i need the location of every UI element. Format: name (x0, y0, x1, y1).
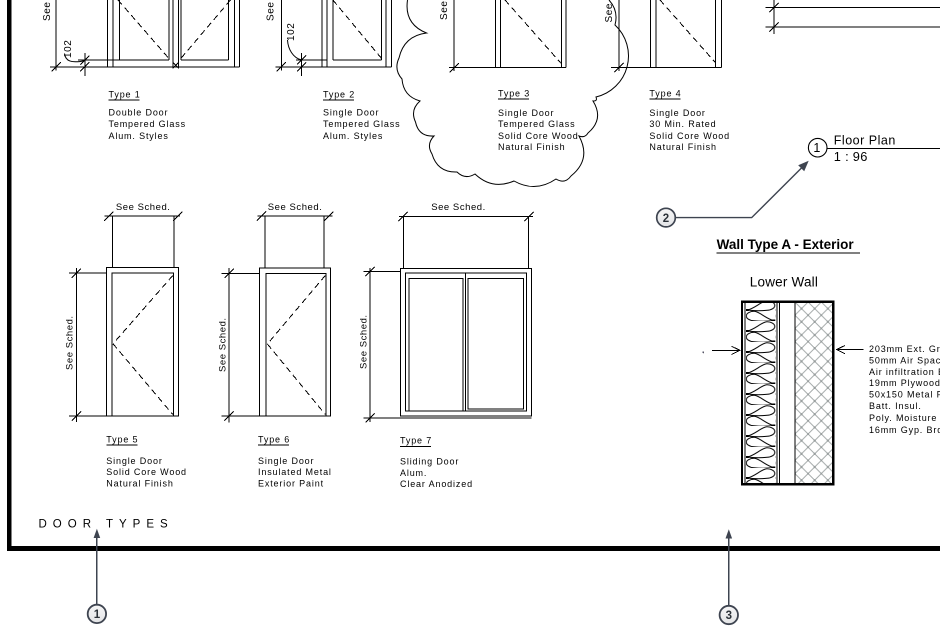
svg-text:See Sched.: See Sched. (358, 314, 369, 369)
svg-text:Tempered Glass: Tempered Glass (498, 119, 575, 129)
svg-text:3: 3 (726, 610, 732, 622)
svg-text:Floor Plan: Floor Plan (834, 134, 896, 148)
svg-text:Single Door: Single Door (323, 108, 379, 118)
svg-text:Type 5: Type 5 (106, 434, 138, 444)
svg-text:1 : 96: 1 : 96 (834, 149, 868, 164)
svg-text:Type 2: Type 2 (323, 90, 355, 100)
svg-text:Exterior Paint: Exterior Paint (258, 479, 324, 489)
svg-text:Alum. Styles: Alum. Styles (323, 131, 383, 141)
svg-text:102: 102 (286, 23, 297, 41)
svg-text:Air infiltration Barrier: Air infiltration Barrier (869, 367, 940, 377)
svg-text:Tempered Glass: Tempered Glass (323, 119, 400, 129)
svg-text:Single Door: Single Door (649, 108, 705, 118)
svg-text:Solid Core Wood: Solid Core Wood (106, 467, 187, 477)
svg-text:See Sched.: See Sched. (431, 202, 486, 213)
svg-text:Type 7: Type 7 (400, 436, 432, 446)
svg-text:1: 1 (94, 609, 101, 621)
svg-text:DOOR TYPES: DOOR TYPES (39, 519, 174, 531)
svg-text:See Sched.: See Sched. (65, 315, 76, 370)
svg-text:Poly. Moisture Barrier: Poly. Moisture Barrier (869, 413, 940, 423)
svg-text:See: See (439, 1, 450, 20)
svg-text:Solid Core Wood: Solid Core Wood (498, 131, 579, 141)
svg-text:50x150 Metal Frame: 50x150 Metal Frame (869, 390, 940, 400)
svg-text:See Sched.: See Sched. (217, 317, 228, 372)
svg-text:Tempered Glass: Tempered Glass (109, 119, 186, 129)
svg-text:Batt. Insul.: Batt. Insul. (869, 401, 922, 411)
svg-text:Lower Wall: Lower Wall (750, 275, 818, 290)
svg-text:Single Door: Single Door (258, 456, 314, 466)
svg-text:See: See (42, 2, 53, 21)
svg-text:2: 2 (663, 213, 669, 225)
svg-text:Solid Core Wood: Solid Core Wood (649, 131, 730, 141)
svg-text:Single Door: Single Door (106, 456, 162, 466)
svg-text:See: See (266, 2, 277, 21)
svg-text:16mm Gyp. Brd.: 16mm Gyp. Brd. (869, 425, 940, 435)
svg-text:Type 6: Type 6 (258, 434, 290, 444)
svg-text:50mm Air Space: 50mm Air Space (869, 355, 940, 365)
svg-text:203mm Ext. Grout: 203mm Ext. Grout (869, 344, 940, 354)
svg-text:Natural Finish: Natural Finish (106, 479, 173, 489)
svg-text:Single Door: Single Door (498, 108, 554, 118)
svg-text:1: 1 (813, 141, 820, 155)
svg-text:Alum. Styles: Alum. Styles (109, 131, 169, 141)
svg-text:See Sched.: See Sched. (116, 202, 171, 213)
svg-text:Clear Anodized: Clear Anodized (400, 479, 473, 489)
svg-text:Alum.: Alum. (400, 468, 427, 478)
svg-text:19mm Plywood Shtg.: 19mm Plywood Shtg. (869, 378, 940, 388)
svg-text:Natural Finish: Natural Finish (649, 142, 716, 152)
svg-text:Type 4: Type 4 (649, 89, 681, 99)
svg-text:30 Min. Rated: 30 Min. Rated (649, 119, 716, 129)
svg-text:Type 3: Type 3 (498, 89, 530, 99)
svg-text:Insulated Metal: Insulated Metal (258, 467, 332, 477)
svg-text:See Sched.: See Sched. (268, 202, 323, 213)
svg-text:Wall Type A - Exterior: Wall Type A - Exterior (717, 237, 855, 252)
svg-text:Type 1: Type 1 (109, 90, 141, 100)
svg-text:Sliding Door: Sliding Door (400, 457, 459, 467)
svg-text:Natural Finish: Natural Finish (498, 142, 565, 152)
svg-text:Double Door: Double Door (109, 108, 169, 118)
